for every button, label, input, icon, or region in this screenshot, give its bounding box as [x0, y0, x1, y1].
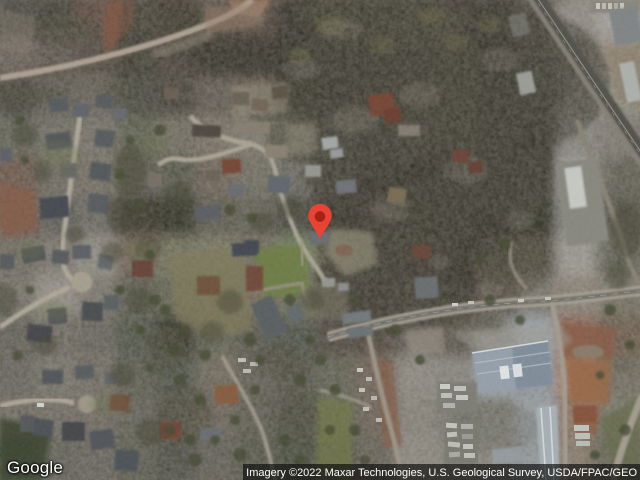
svg-text:Imagery ©2022 Maxar Technologi: Imagery ©2022 Maxar Technologies, U.S. G… [246, 467, 637, 479]
